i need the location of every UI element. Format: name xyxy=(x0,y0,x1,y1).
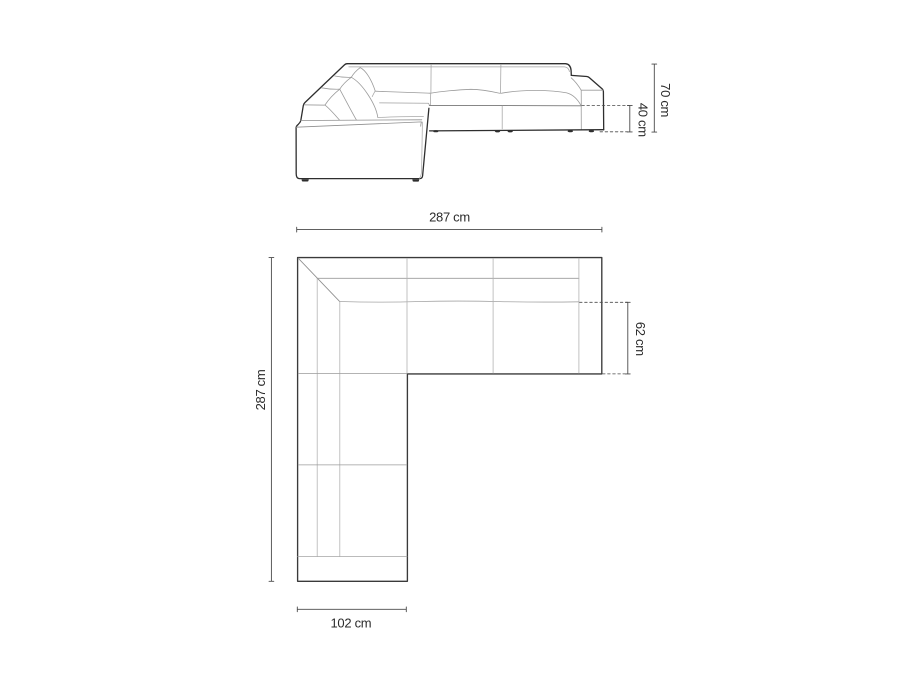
svg-text:40 cm: 40 cm xyxy=(635,103,650,137)
svg-text:70 cm: 70 cm xyxy=(658,83,673,117)
svg-text:102 cm: 102 cm xyxy=(330,616,371,631)
svg-text:62 cm: 62 cm xyxy=(633,322,648,356)
svg-text:287 cm: 287 cm xyxy=(429,210,470,225)
svg-text:287 cm: 287 cm xyxy=(253,370,268,411)
